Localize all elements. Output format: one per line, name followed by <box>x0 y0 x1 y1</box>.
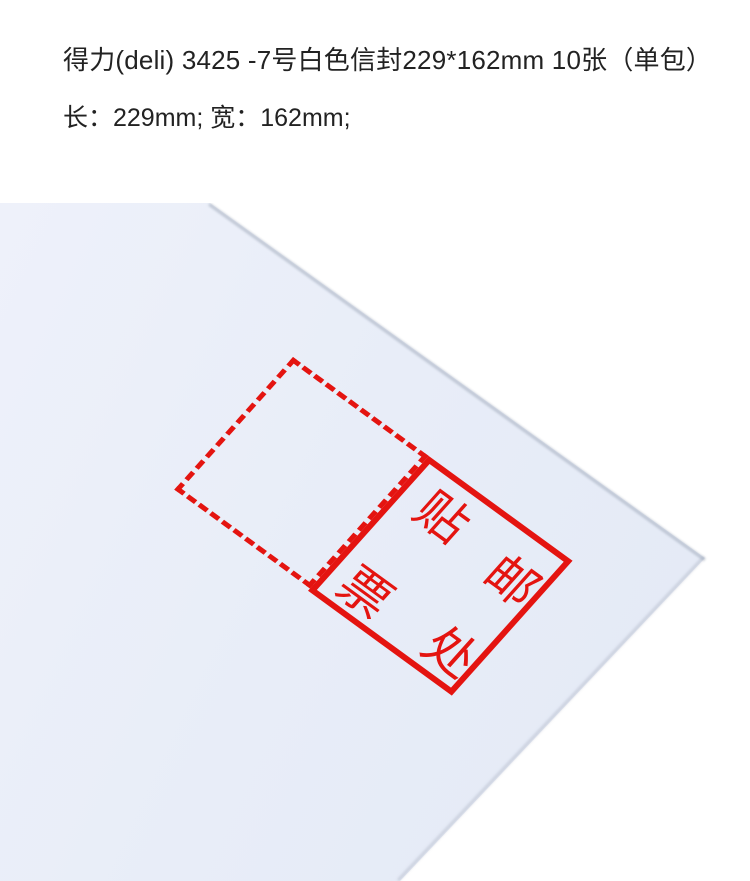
product-title: 得力(deli) 3425 -7号白色信封229*162mm 10张（单包） <box>63 40 712 77</box>
product-dimensions: 长：229mm; 宽：162mm; <box>63 98 351 134</box>
postage-char-tie: 贴 <box>405 484 479 551</box>
product-photo: 贴 邮 票 处 <box>0 203 750 881</box>
product-page: 得力(deli) 3425 -7号白色信封229*162mm 10张（单包） 长… <box>0 0 750 881</box>
